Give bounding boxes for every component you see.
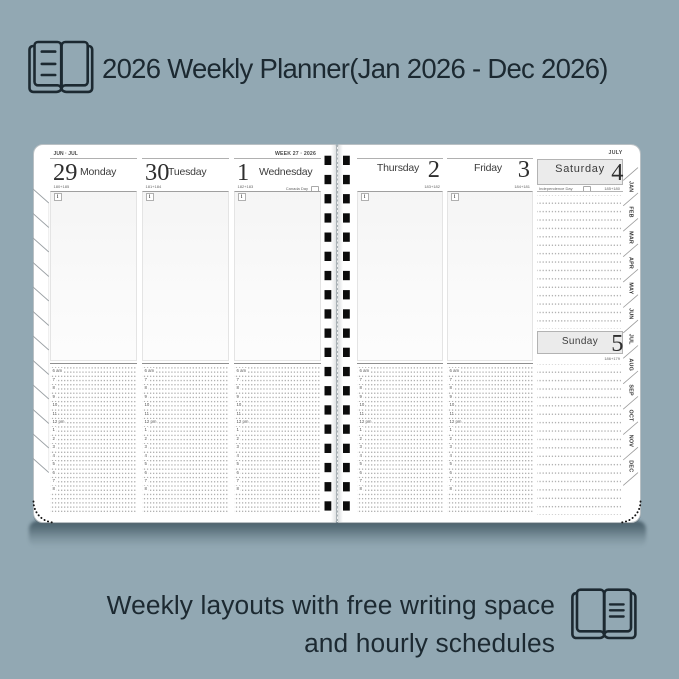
svg-text:JAN: JAN <box>628 181 634 192</box>
svg-text:SEP: SEP <box>628 384 634 396</box>
svg-text:FEB: FEB <box>628 206 634 217</box>
svg-text:MAY: MAY <box>628 282 634 294</box>
svg-text:JUL: JUL <box>628 334 634 345</box>
svg-text:APR: APR <box>628 257 634 269</box>
svg-text:NOV: NOV <box>628 435 634 447</box>
svg-text:OCT: OCT <box>628 410 634 422</box>
svg-text:MAR: MAR <box>628 231 634 244</box>
svg-text:DEC: DEC <box>628 460 634 472</box>
svg-text:AUG: AUG <box>628 358 634 371</box>
svg-text:JUN: JUN <box>628 308 634 319</box>
